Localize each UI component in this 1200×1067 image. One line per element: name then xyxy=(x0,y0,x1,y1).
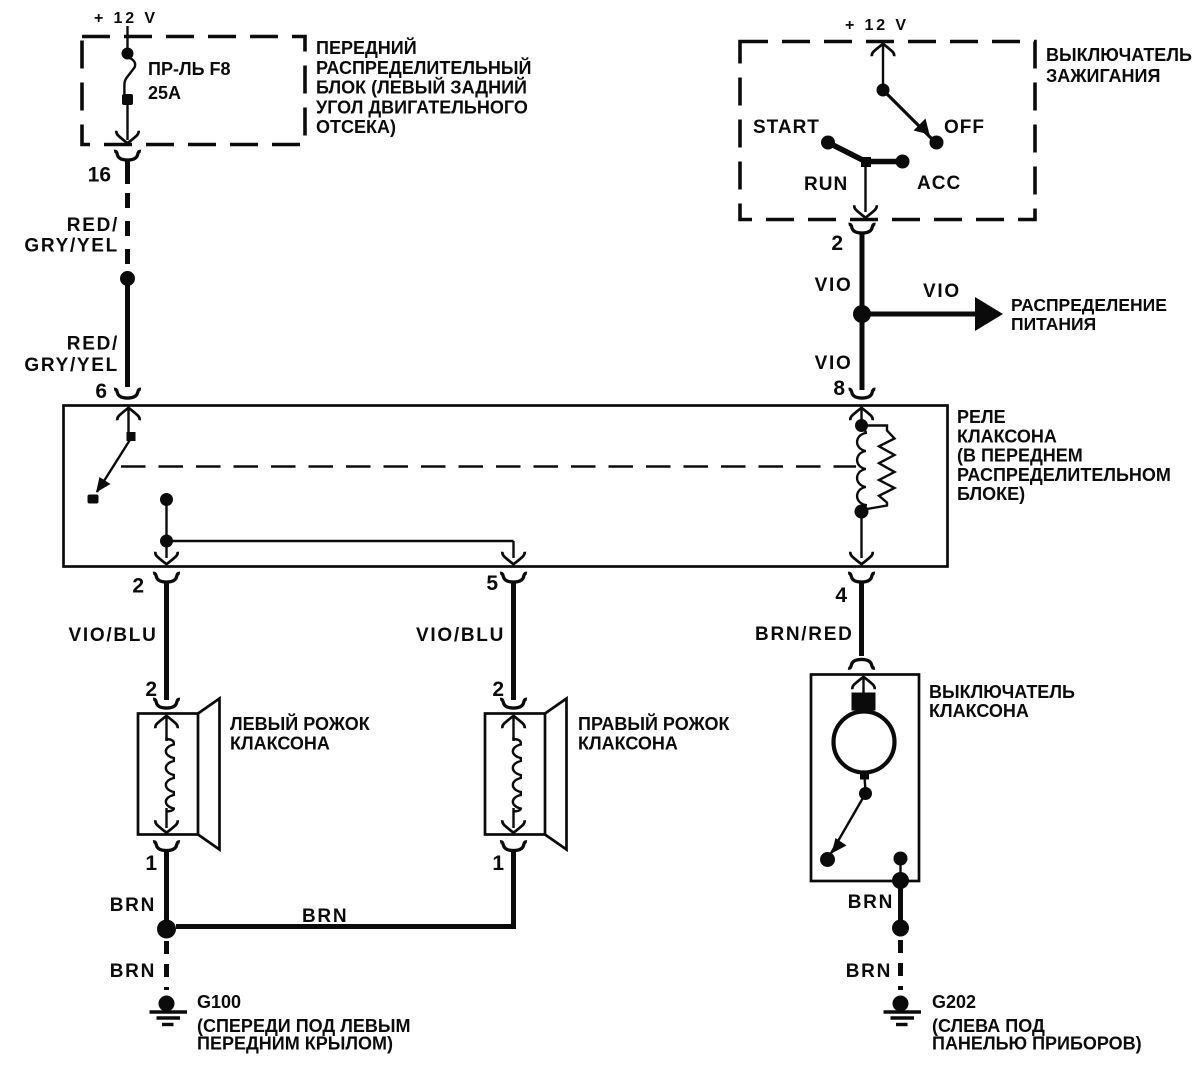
svg-text:РЕЛЕ: РЕЛЕ xyxy=(957,407,1006,427)
svg-text:RED/: RED/ xyxy=(67,334,119,355)
svg-text:2: 2 xyxy=(132,575,144,598)
svg-text:ПАНЕЛЬЮ ПРИБОРОВ): ПАНЕЛЬЮ ПРИБОРОВ) xyxy=(932,1034,1142,1054)
svg-text:ПЕРЕДНИМ КРЫЛОМ): ПЕРЕДНИМ КРЫЛОМ) xyxy=(197,1034,393,1054)
svg-text:ЗАЖИГАНИЯ: ЗАЖИГАНИЯ xyxy=(1046,66,1160,86)
svg-text:4: 4 xyxy=(835,584,847,607)
svg-text:G202: G202 xyxy=(932,992,976,1012)
svg-text:КЛАКСОНА: КЛАКСОНА xyxy=(578,734,678,754)
svg-text:VIO: VIO xyxy=(815,353,853,374)
svg-text:25А: 25А xyxy=(148,83,181,103)
svg-text:1: 1 xyxy=(145,852,157,875)
svg-text:START: START xyxy=(753,117,820,138)
svg-text:ВЫКЛЮЧАТЕЛЬ: ВЫКЛЮЧАТЕЛЬ xyxy=(929,682,1075,702)
svg-text:2: 2 xyxy=(831,232,843,255)
svg-text:BRN: BRN xyxy=(846,961,892,982)
svg-text:VIO: VIO xyxy=(815,275,853,296)
svg-text:8: 8 xyxy=(833,377,845,400)
svg-text:ПР-ЛЬ F8: ПР-ЛЬ F8 xyxy=(148,59,231,79)
svg-text:1: 1 xyxy=(492,852,504,875)
svg-text:ВЫКЛЮЧАТЕЛЬ: ВЫКЛЮЧАТЕЛЬ xyxy=(1046,45,1192,65)
svg-text:BRN: BRN xyxy=(110,895,156,916)
svg-text:2: 2 xyxy=(145,678,157,701)
svg-text:ПЕРЕДНИЙ: ПЕРЕДНИЙ xyxy=(316,37,417,58)
svg-text:OFF: OFF xyxy=(944,117,985,138)
svg-text:+ 12 V: + 12 V xyxy=(845,17,906,34)
svg-text:БЛОК (ЛЕВЫЙ ЗАДНИЙ: БЛОК (ЛЕВЫЙ ЗАДНИЙ xyxy=(316,77,527,98)
svg-text:BRN/RED: BRN/RED xyxy=(755,624,853,645)
svg-text:6: 6 xyxy=(95,380,107,403)
svg-text:G100: G100 xyxy=(197,992,241,1012)
svg-text:БЛОКЕ): БЛОКЕ) xyxy=(957,484,1025,504)
svg-text:BRN: BRN xyxy=(110,961,156,982)
svg-text:RED/: RED/ xyxy=(67,215,119,236)
svg-text:BRN: BRN xyxy=(302,906,348,927)
svg-text:VIO/BLU: VIO/BLU xyxy=(416,625,505,646)
svg-text:РАСПРЕДЕЛИТЕЛЬНЫЙ: РАСПРЕДЕЛИТЕЛЬНЫЙ xyxy=(316,57,531,78)
svg-text:GRY/YEL: GRY/YEL xyxy=(24,236,119,257)
svg-text:BRN: BRN xyxy=(848,892,894,913)
svg-text:ПРАВЫЙ РОЖОК: ПРАВЫЙ РОЖОК xyxy=(578,713,730,734)
svg-text:КЛАКСОНА: КЛАКСОНА xyxy=(957,426,1057,446)
svg-text:+ 12 V: + 12 V xyxy=(94,10,155,27)
svg-text:КЛАКСОНА: КЛАКСОНА xyxy=(230,734,330,754)
svg-text:VIO/BLU: VIO/BLU xyxy=(69,625,158,646)
svg-text:КЛАКСОНА: КЛАКСОНА xyxy=(929,701,1029,721)
svg-text:16: 16 xyxy=(88,164,111,187)
svg-text:(В ПЕРЕДНЕМ: (В ПЕРЕДНЕМ xyxy=(957,446,1083,466)
svg-text:ОТСЕКА): ОТСЕКА) xyxy=(316,117,396,137)
svg-text:2: 2 xyxy=(492,678,504,701)
svg-text:ACC: ACC xyxy=(917,173,961,194)
svg-text:RUN: RUN xyxy=(804,174,848,195)
svg-text:5: 5 xyxy=(486,572,498,595)
svg-text:РАСПРЕДЕЛЕНИЕ: РАСПРЕДЕЛЕНИЕ xyxy=(1011,295,1167,315)
svg-text:ЛЕВЫЙ РОЖОК: ЛЕВЫЙ РОЖОК xyxy=(230,713,371,734)
svg-text:GRY/YEL: GRY/YEL xyxy=(24,355,119,376)
svg-text:ПИТАНИЯ: ПИТАНИЯ xyxy=(1011,314,1096,334)
svg-text:VIO: VIO xyxy=(923,281,961,302)
svg-text:РАСПРЕДЕЛИТЕЛЬНОМ: РАСПРЕДЕЛИТЕЛЬНОМ xyxy=(957,465,1171,485)
svg-text:УГОЛ ДВИГАТЕЛЬНОГО: УГОЛ ДВИГАТЕЛЬНОГО xyxy=(316,97,528,117)
